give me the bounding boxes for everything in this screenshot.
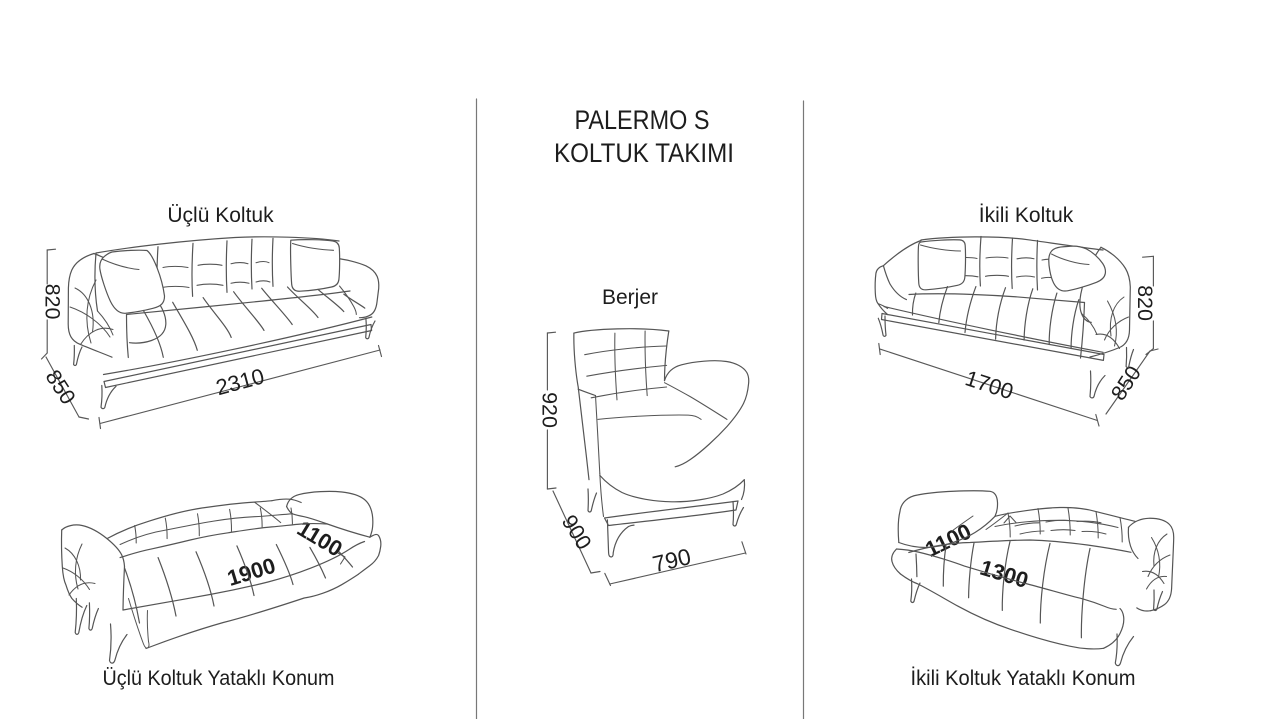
svg-text:PALERMO S: PALERMO S xyxy=(575,105,710,135)
svg-text:Berjer: Berjer xyxy=(602,286,658,309)
svg-text:1700: 1700 xyxy=(962,365,1016,404)
svg-text:850: 850 xyxy=(1106,362,1146,405)
svg-text:790: 790 xyxy=(650,543,693,577)
svg-text:KOLTUK TAKIMI: KOLTUK TAKIMI xyxy=(554,138,734,168)
svg-text:820: 820 xyxy=(41,284,65,320)
svg-text:850: 850 xyxy=(41,366,81,409)
svg-text:Üçlü Koltuk: Üçlü Koltuk xyxy=(167,204,274,227)
svg-text:2310: 2310 xyxy=(213,363,267,400)
svg-text:Üçlü Koltuk Yataklı Konum: Üçlü Koltuk Yataklı Konum xyxy=(103,666,335,690)
svg-text:920: 920 xyxy=(538,392,562,428)
svg-text:İkili Koltuk Yataklı Konum: İkili Koltuk Yataklı Konum xyxy=(911,666,1136,690)
svg-text:1100: 1100 xyxy=(293,516,347,562)
svg-text:İkili Koltuk: İkili Koltuk xyxy=(979,204,1074,227)
svg-text:820: 820 xyxy=(1133,285,1157,321)
svg-text:900: 900 xyxy=(557,511,596,554)
